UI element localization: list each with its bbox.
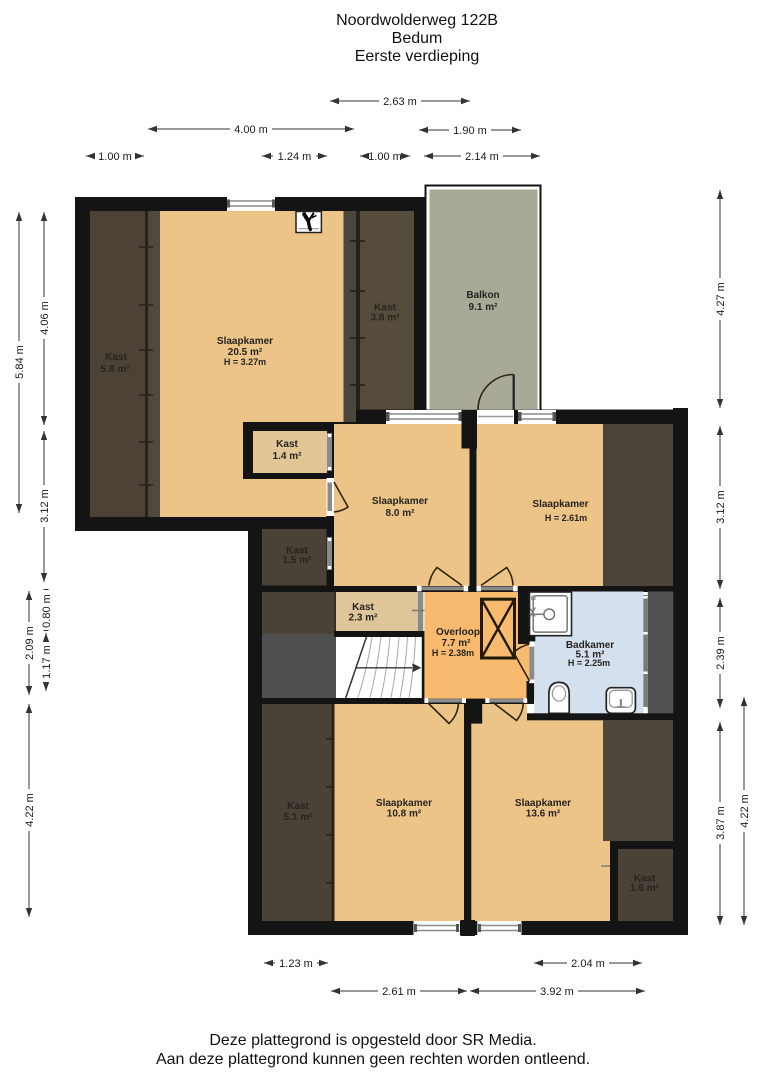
svg-text:Kast: Kast — [352, 602, 374, 613]
svg-text:Bedum: Bedum — [392, 30, 443, 47]
svg-text:4.27 m: 4.27 m — [715, 282, 727, 316]
svg-text:Noordwolderweg 122B: Noordwolderweg 122B — [336, 12, 498, 29]
svg-text:8.0 m²: 8.0 m² — [386, 508, 416, 519]
svg-text:2.61 m: 2.61 m — [382, 986, 416, 998]
svg-text:0.80 m: 0.80 m — [41, 594, 53, 628]
svg-text:1.17 m: 1.17 m — [41, 645, 53, 679]
svg-text:H = 2.38m: H = 2.38m — [432, 648, 474, 658]
svg-text:Kast: Kast — [276, 439, 298, 450]
svg-text:2.3 m²: 2.3 m² — [349, 613, 379, 624]
svg-text:3.92 m: 3.92 m — [540, 986, 574, 998]
svg-text:1.6 m²: 1.6 m² — [630, 883, 660, 894]
svg-text:1.4 m²: 1.4 m² — [273, 451, 303, 462]
svg-text:9.1 m²: 9.1 m² — [469, 302, 499, 313]
svg-text:Kast: Kast — [287, 801, 309, 812]
svg-text:H = 3.27m: H = 3.27m — [224, 357, 266, 367]
svg-text:4.00 m: 4.00 m — [234, 124, 268, 136]
svg-text:4.06 m: 4.06 m — [39, 301, 51, 335]
svg-text:Eerste verdieping: Eerste verdieping — [355, 48, 480, 65]
svg-text:5.8 m²: 5.8 m² — [101, 364, 131, 375]
svg-text:3.8 m²: 3.8 m² — [371, 313, 401, 324]
svg-text:4.22 m: 4.22 m — [24, 793, 36, 827]
svg-text:Slaapkamer: Slaapkamer — [376, 798, 432, 809]
svg-text:H = 2.61m: H = 2.61m — [545, 513, 587, 523]
svg-text:3.87 m: 3.87 m — [715, 806, 727, 840]
svg-text:1.00 m: 1.00 m — [368, 151, 402, 163]
svg-text:1.23 m: 1.23 m — [279, 958, 313, 970]
svg-text:Slaapkamer: Slaapkamer — [532, 499, 588, 510]
svg-text:3.12 m: 3.12 m — [39, 489, 51, 523]
svg-text:1.24 m: 1.24 m — [278, 151, 312, 163]
svg-text:4.22 m: 4.22 m — [739, 794, 751, 828]
svg-text:Overloop: Overloop — [436, 627, 480, 638]
svg-text:3.12 m: 3.12 m — [715, 490, 727, 524]
svg-text:2.63 m: 2.63 m — [383, 96, 417, 108]
svg-text:1.00 m: 1.00 m — [98, 151, 132, 163]
svg-text:2.14 m: 2.14 m — [465, 151, 499, 163]
svg-text:5.1 m²: 5.1 m² — [284, 812, 314, 823]
svg-text:Slaapkamer: Slaapkamer — [515, 798, 571, 809]
svg-text:Kast: Kast — [105, 352, 127, 363]
svg-text:Balkon: Balkon — [466, 290, 499, 301]
svg-text:Deze plattegrond is opgesteld: Deze plattegrond is opgesteld door SR Me… — [209, 1032, 536, 1049]
svg-text:13.6 m²: 13.6 m² — [526, 809, 561, 820]
svg-text:H = 2.25m: H = 2.25m — [568, 658, 610, 668]
svg-text:2.39 m: 2.39 m — [715, 636, 727, 670]
svg-text:2.04 m: 2.04 m — [571, 958, 605, 970]
svg-text:1.90 m: 1.90 m — [453, 125, 487, 137]
svg-text:10.8 m²: 10.8 m² — [387, 809, 422, 820]
svg-text:5.84 m: 5.84 m — [14, 345, 26, 379]
svg-text:2.09 m: 2.09 m — [24, 626, 36, 660]
svg-text:Slaapkamer: Slaapkamer — [372, 496, 428, 507]
svg-text:1.5 m²: 1.5 m² — [283, 555, 313, 566]
svg-text:Slaapkamer: Slaapkamer — [217, 336, 273, 347]
svg-text:Aan deze plattegrond kunnen ge: Aan deze plattegrond kunnen geen rechten… — [156, 1051, 590, 1068]
